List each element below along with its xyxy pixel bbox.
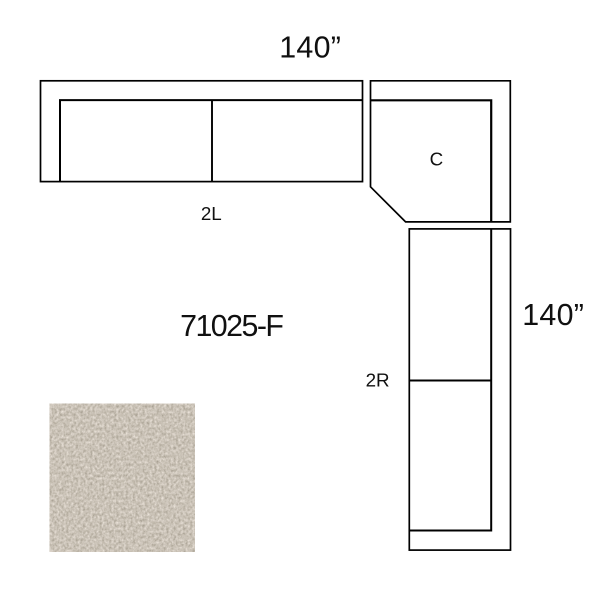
svg-text:2L: 2L: [201, 203, 222, 224]
svg-text:140”: 140”: [522, 298, 584, 332]
svg-text:2R: 2R: [366, 370, 390, 391]
svg-text:C: C: [430, 149, 444, 170]
svg-text:71025-F: 71025-F: [180, 309, 283, 343]
svg-text:140”: 140”: [279, 31, 341, 65]
